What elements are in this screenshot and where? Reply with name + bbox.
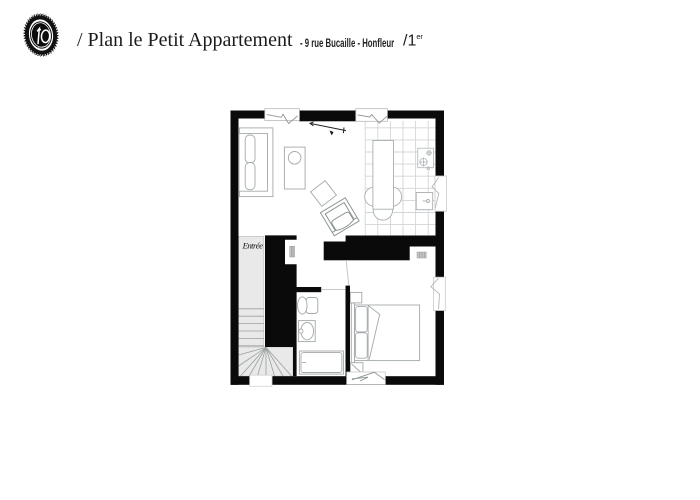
svg-text:Entrée: Entrée [242,240,263,250]
